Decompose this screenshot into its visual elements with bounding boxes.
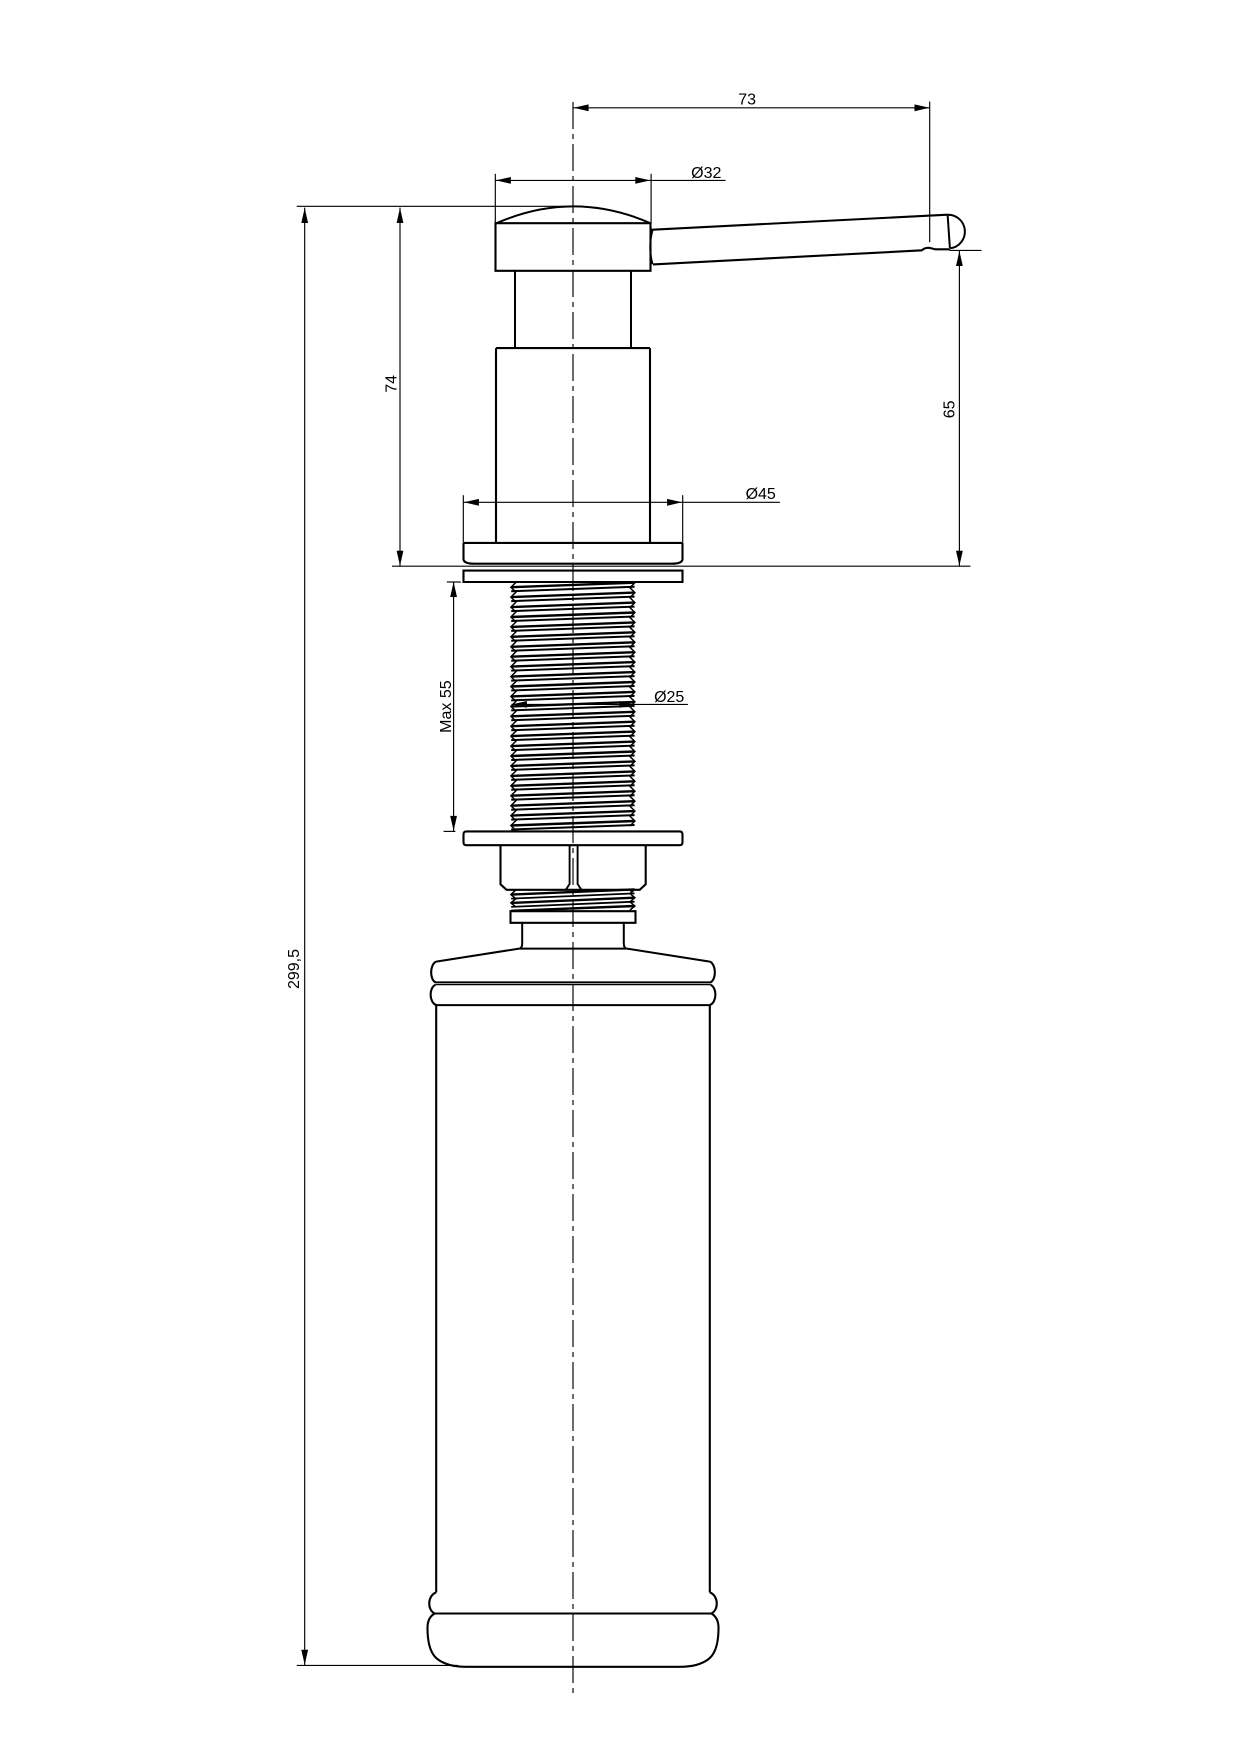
svg-text:Ø45: Ø45 xyxy=(746,486,776,503)
svg-text:65: 65 xyxy=(941,400,958,418)
svg-text:299,5: 299,5 xyxy=(286,949,303,989)
svg-text:74: 74 xyxy=(384,375,401,393)
svg-text:Max 55: Max 55 xyxy=(438,680,455,733)
svg-text:Ø32: Ø32 xyxy=(691,165,721,182)
svg-text:Ø25: Ø25 xyxy=(654,689,684,706)
svg-text:73: 73 xyxy=(738,92,756,109)
